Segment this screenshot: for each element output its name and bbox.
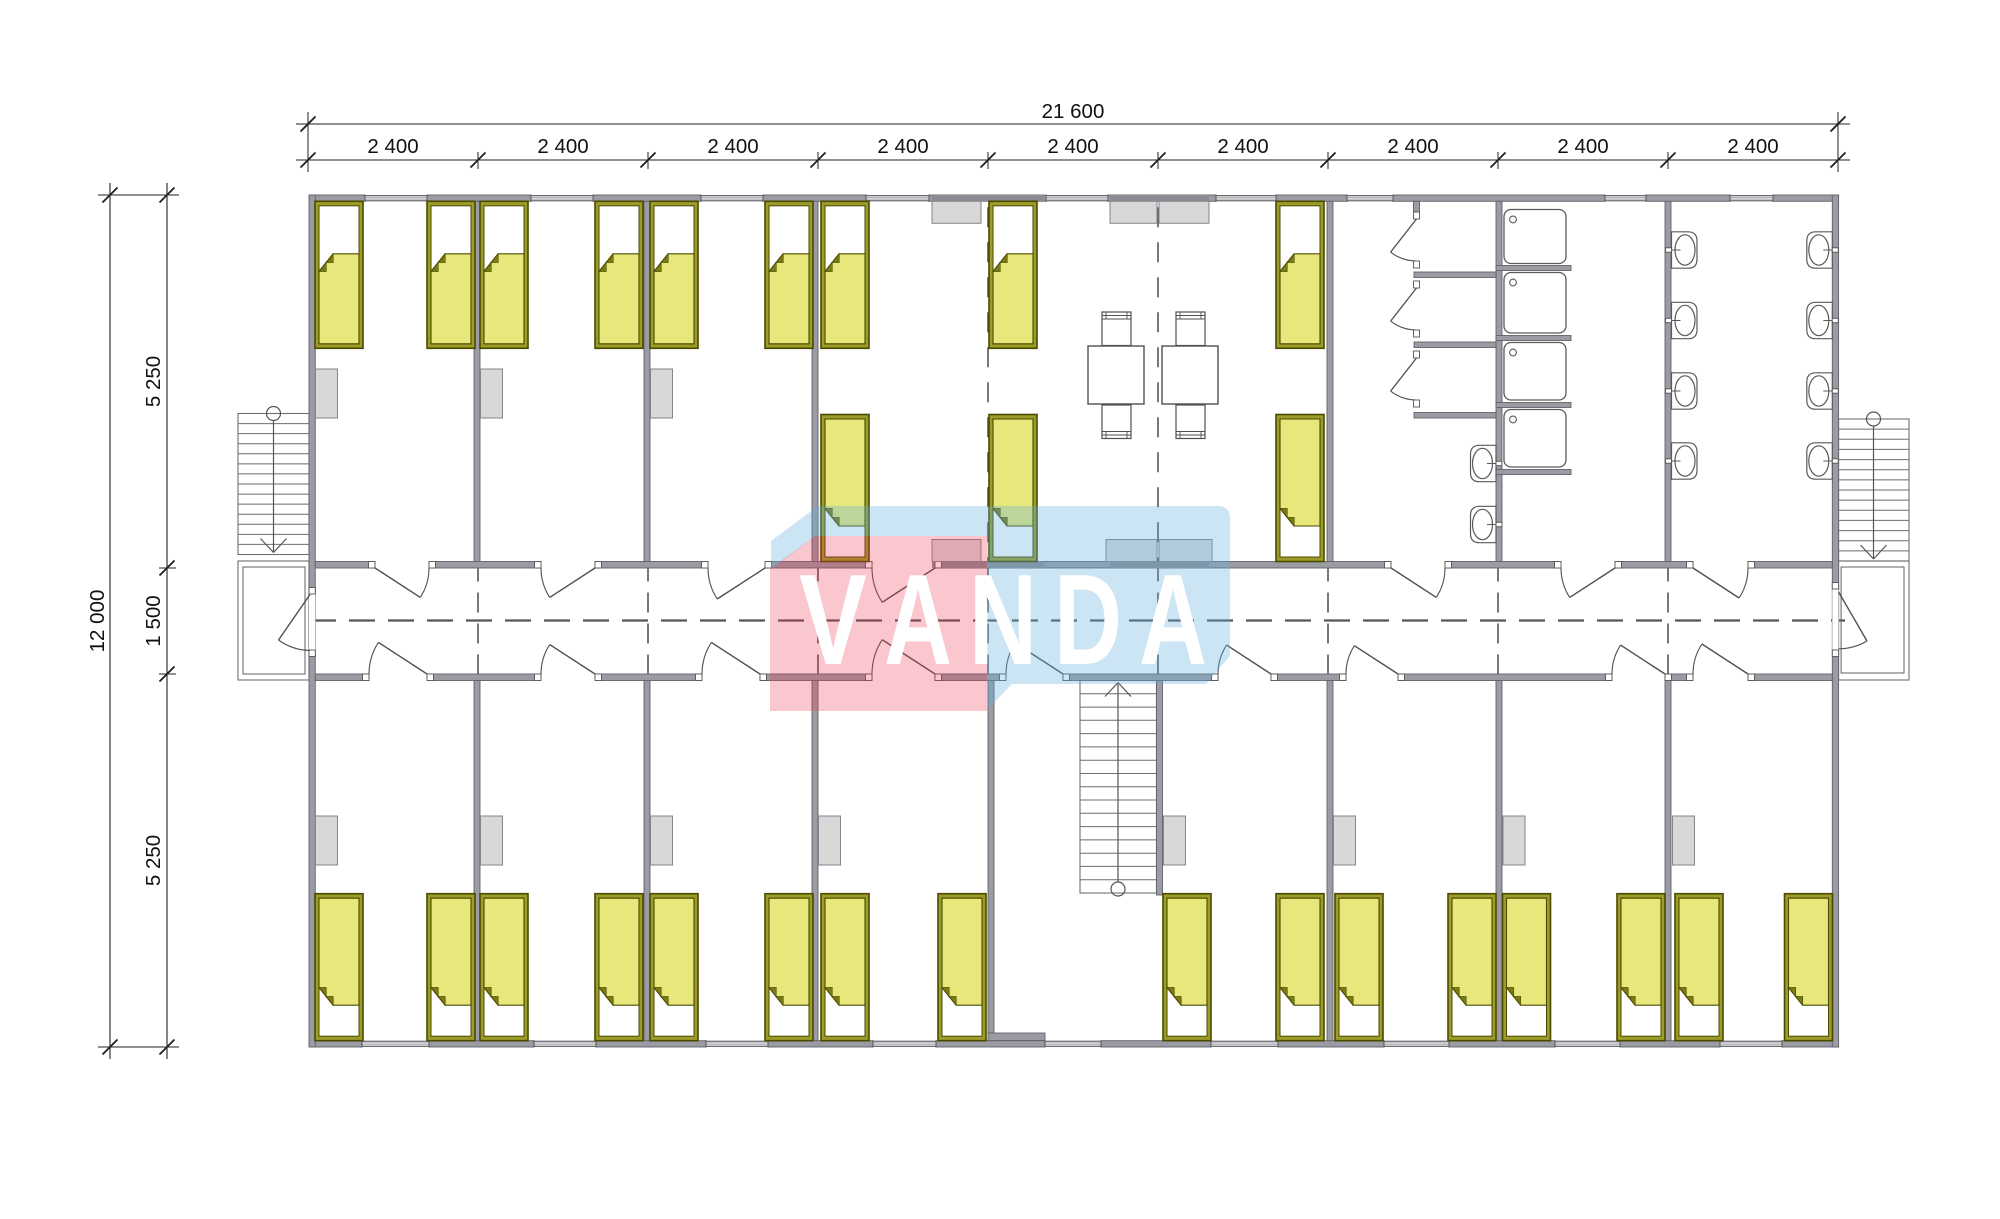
svg-text:1 500: 1 500	[142, 595, 165, 646]
svg-text:2 400: 2 400	[707, 135, 758, 158]
svg-text:5 250: 5 250	[142, 835, 165, 886]
svg-text:2 400: 2 400	[367, 135, 418, 158]
svg-text:2 400: 2 400	[1387, 135, 1438, 158]
svg-text:12 000: 12 000	[86, 590, 109, 653]
svg-text:2 400: 2 400	[1557, 135, 1608, 158]
svg-text:2 400: 2 400	[537, 135, 588, 158]
svg-text:5 250: 5 250	[142, 356, 165, 407]
svg-text:D: D	[1054, 548, 1122, 692]
svg-text:2 400: 2 400	[877, 135, 928, 158]
svg-text:2 400: 2 400	[1727, 135, 1778, 158]
svg-text:A: A	[1139, 548, 1207, 692]
svg-text:2 400: 2 400	[1047, 135, 1098, 158]
svg-text:21 600: 21 600	[1042, 100, 1105, 123]
svg-text:N: N	[969, 548, 1037, 692]
svg-text:V: V	[799, 548, 867, 692]
svg-text:A: A	[884, 548, 952, 692]
svg-text:2 400: 2 400	[1217, 135, 1268, 158]
